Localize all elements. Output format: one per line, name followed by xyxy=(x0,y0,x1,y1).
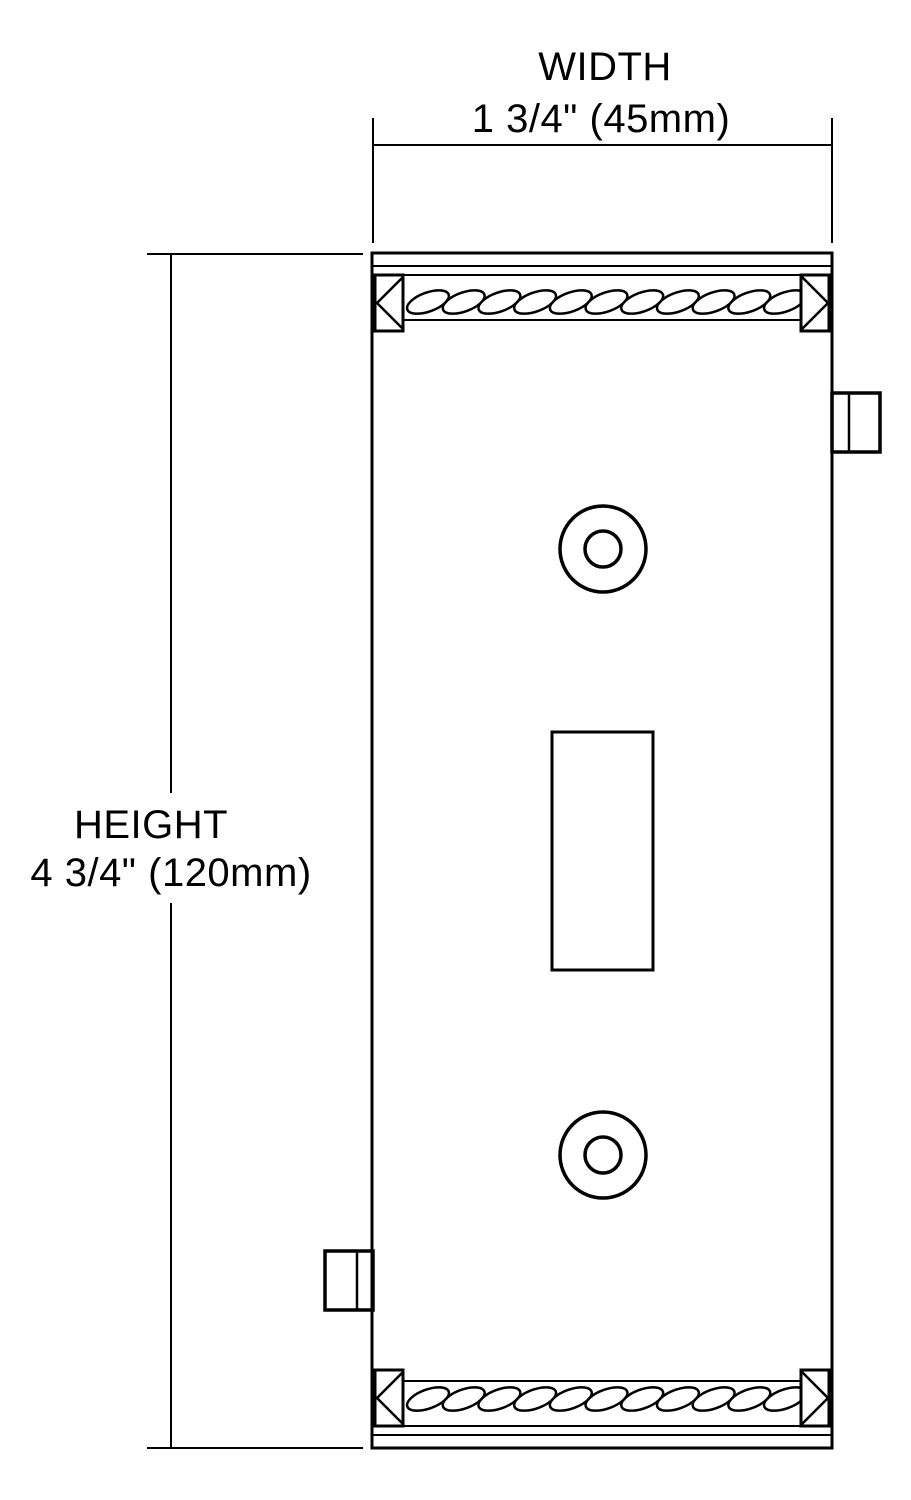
mounting-tab-right xyxy=(832,393,880,452)
width-dimension-value: 1 3/4" (45mm) xyxy=(401,99,801,139)
dimension-diagram: WIDTH 1 3/4" (45mm) HEIGHT 4 3/4" (120mm… xyxy=(0,0,911,1500)
mounting-tab-left-outline xyxy=(325,1251,373,1310)
mounting-tab-right-outline xyxy=(832,393,880,452)
corner-block-bottom-right xyxy=(801,1370,829,1426)
width-dimension-label: WIDTH xyxy=(405,47,805,87)
height-dimension-label: HEIGHT xyxy=(1,805,301,845)
mounting-tab-left xyxy=(325,1251,373,1310)
wallplate-outline xyxy=(372,253,832,1448)
wallplate-line-drawing xyxy=(0,0,911,1500)
corner-block-bottom-left xyxy=(375,1370,403,1426)
corner-block-top-left xyxy=(375,275,403,331)
height-dimension-value: 4 3/4" (120mm) xyxy=(0,853,342,893)
corner-block-top-right xyxy=(801,275,829,331)
